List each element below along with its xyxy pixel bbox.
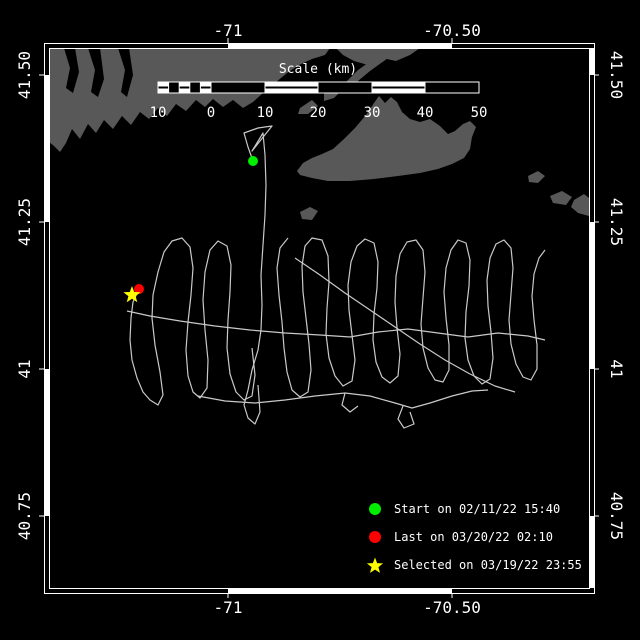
- vehicle-track[interactable]: [295, 258, 515, 392]
- legend-last-label: Last on 03/20/22 02:10: [394, 528, 553, 546]
- start-marker-icon: [364, 500, 386, 518]
- lon-label-top: -71: [214, 21, 243, 40]
- scalebar-label: 10: [150, 105, 167, 121]
- vehicle-track[interactable]: [130, 238, 255, 405]
- vehicle-track[interactable]: [244, 126, 272, 424]
- lat-label-left: 41.25: [15, 198, 34, 246]
- scalebar-label: 0: [207, 105, 215, 121]
- legend-item-start: Start on 02/11/22 15:40: [364, 500, 560, 518]
- neatline-segment: [589, 48, 594, 75]
- scalebar-label: 30: [364, 105, 381, 121]
- lat-label-right: 40.75: [607, 492, 626, 540]
- lat-label-right: 41.25: [607, 198, 626, 246]
- scalebar-title: Scale (km): [279, 62, 357, 77]
- scalebar-label: 50: [471, 105, 488, 121]
- lon-label-bottom: -70.50: [423, 598, 481, 617]
- scalebar-label: 20: [310, 105, 327, 121]
- neatline-segment: [228, 43, 452, 49]
- lat-label-left: 40.75: [15, 492, 34, 540]
- lon-label-bottom: -71: [214, 598, 243, 617]
- neatline-segment: [44, 369, 50, 516]
- neatline-segment: [589, 516, 594, 588]
- vehicle-track[interactable]: [398, 406, 414, 428]
- last-marker-icon: [364, 528, 386, 546]
- legend-start-label: Start on 02/11/22 15:40: [394, 500, 560, 518]
- vehicle-track[interactable]: [127, 311, 545, 340]
- scalebar-label: 40: [417, 105, 434, 121]
- lon-label-top: -70.50: [423, 21, 481, 40]
- land-polygon: [528, 171, 545, 183]
- neatline-segment: [228, 588, 452, 593]
- vehicle-track[interactable]: [342, 393, 358, 412]
- selected-marker-icon: [364, 556, 386, 574]
- track-map-view: -71-71-70.50-70.5041.5041.5041.2541.2541…: [0, 0, 640, 640]
- neatline-segment: [44, 75, 50, 222]
- land-polygon: [300, 207, 318, 220]
- land-polygon: [571, 194, 589, 216]
- lat-label-right: 41: [607, 359, 626, 378]
- start-marker[interactable]: [248, 156, 258, 166]
- legend-item-selected: Selected on 03/19/22 23:55: [364, 556, 582, 574]
- lat-label-left: 41: [15, 359, 34, 378]
- vehicle-track[interactable]: [277, 238, 545, 397]
- scalebar-label: 10: [257, 105, 274, 121]
- legend-item-last: Last on 03/20/22 02:10: [364, 528, 553, 546]
- lat-label-right: 41.50: [607, 51, 626, 99]
- land-polygon: [550, 191, 572, 205]
- legend-selected-label: Selected on 03/19/22 23:55: [394, 556, 582, 574]
- lat-label-left: 41.50: [15, 51, 34, 99]
- neatline-segment: [589, 222, 594, 369]
